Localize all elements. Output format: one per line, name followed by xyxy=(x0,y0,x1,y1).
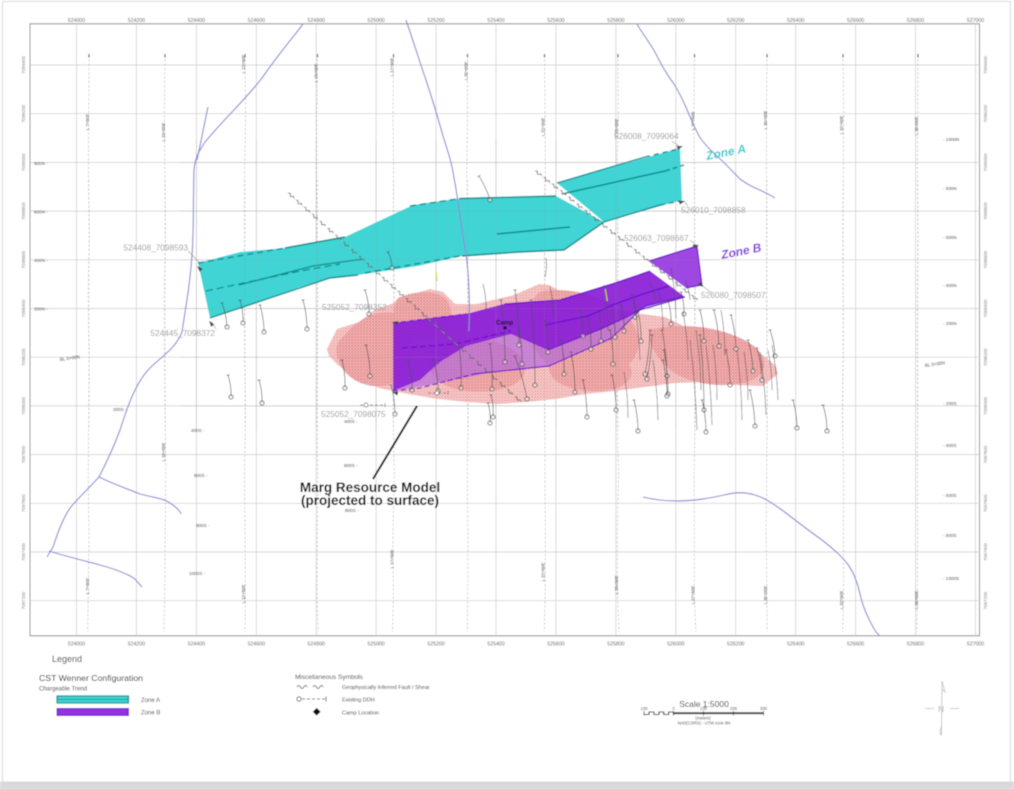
svg-text:7099000: 7099000 xyxy=(983,153,988,171)
svg-text:NAD(CSRS) - UTM zone 8N: NAD(CSRS) - UTM zone 8N xyxy=(678,721,731,726)
svg-text:7097800: 7097800 xyxy=(21,445,26,463)
svg-text:524600: 524600 xyxy=(248,18,265,24)
svg-text:800S -: 800S - xyxy=(196,523,210,528)
svg-text:Camp: Camp xyxy=(496,320,513,327)
svg-text:Chargeable Trend: Chargeable Trend xyxy=(39,687,87,693)
svg-text:7098000: 7098000 xyxy=(21,397,26,415)
svg-text:Miscellaneous Symbols: Miscellaneous Symbols xyxy=(295,674,364,681)
svg-text:- 400S: - 400S xyxy=(943,443,957,448)
svg-text:7098600: 7098600 xyxy=(21,250,26,268)
svg-text:524400: 524400 xyxy=(188,642,205,648)
svg-text:526008_7099064: 526008_7099064 xyxy=(614,131,679,141)
svg-text:525400: 525400 xyxy=(487,18,504,24)
svg-text:524200: 524200 xyxy=(128,18,145,24)
svg-text:1000S -: 1000S - xyxy=(189,571,206,576)
svg-text:526400: 526400 xyxy=(787,642,804,648)
svg-text:526010_7098858: 526010_7098858 xyxy=(681,205,746,215)
svg-text:600S -: 600S - xyxy=(194,473,208,478)
svg-text:Legend: Legend xyxy=(52,654,82,664)
svg-text:L 15+00E: L 15+00E xyxy=(314,64,319,83)
svg-text:L 7+50E: L 7+50E xyxy=(85,578,90,594)
svg-text:524200: 524200 xyxy=(128,642,145,648)
svg-text:7097400: 7097400 xyxy=(21,543,26,561)
svg-text:L 25+00E: L 25+00E xyxy=(614,576,619,595)
svg-text:7097200: 7097200 xyxy=(983,591,988,609)
svg-text:524445_7098372: 524445_7098372 xyxy=(150,328,215,338)
svg-text:526800: 526800 xyxy=(907,642,924,648)
svg-text:7098200: 7098200 xyxy=(21,348,26,366)
svg-text:7097200: 7097200 xyxy=(21,591,26,609)
svg-text:525600: 525600 xyxy=(547,642,564,648)
svg-text:7099000: 7099000 xyxy=(21,153,26,171)
svg-text:CST Wenner Configuration: CST Wenner Configuration xyxy=(39,673,143,683)
svg-text:525052_7098075: 525052_7098075 xyxy=(321,409,386,419)
svg-text:800S -: 800S - xyxy=(345,508,359,513)
svg-text:L 7+50E: L 7+50E xyxy=(85,114,90,130)
svg-text:Existing DDH: Existing DDH xyxy=(342,698,375,704)
svg-text:7099200: 7099200 xyxy=(983,104,988,122)
svg-text:526600: 526600 xyxy=(847,642,864,648)
svg-text:525800: 525800 xyxy=(607,642,624,648)
svg-text:200: 200 xyxy=(730,706,738,711)
svg-text:200N -: 200N - xyxy=(34,307,48,312)
svg-text:L 32+50E: L 32+50E xyxy=(839,116,844,135)
svg-text:Camp Location: Camp Location xyxy=(342,711,379,717)
svg-text:L 35+00E: L 35+00E xyxy=(914,117,919,136)
svg-text:L 12+50E: L 12+50E xyxy=(241,55,246,74)
svg-text:L 17+50E: L 17+50E xyxy=(390,58,395,77)
svg-text:400N -: 400N - xyxy=(34,258,48,263)
svg-text:300: 300 xyxy=(760,706,768,711)
svg-text:524800: 524800 xyxy=(308,642,325,648)
svg-text:L 12+50E: L 12+50E xyxy=(241,585,246,604)
svg-text:7098800: 7098800 xyxy=(21,202,26,220)
svg-text:7097600: 7097600 xyxy=(983,494,988,512)
svg-text:7098200: 7098200 xyxy=(983,348,988,366)
svg-text:L 17+50E: L 17+50E xyxy=(390,550,395,569)
svg-text:- 200N: - 200N xyxy=(943,321,957,326)
svg-text:7099400: 7099400 xyxy=(21,56,26,74)
svg-text:- 200S: - 200S xyxy=(943,401,957,406)
svg-text:525200: 525200 xyxy=(427,18,444,24)
svg-text:524600: 524600 xyxy=(248,642,265,648)
svg-text:L 30+00E: L 30+00E xyxy=(763,111,768,130)
svg-text:- 400N: - 400N xyxy=(943,283,957,288)
svg-text:7098600: 7098600 xyxy=(983,250,988,268)
svg-text:100: 100 xyxy=(700,706,708,711)
svg-text:- 800S: - 800S xyxy=(943,533,957,538)
svg-text:L 32+50E: L 32+50E xyxy=(839,591,844,610)
svg-text:7097600: 7097600 xyxy=(21,494,26,512)
svg-text:7099400: 7099400 xyxy=(983,56,988,74)
svg-text:7099200: 7099200 xyxy=(21,104,26,122)
svg-text:526200: 526200 xyxy=(727,642,744,648)
svg-text:526800: 526800 xyxy=(907,18,924,24)
svg-text:800N -: 800N - xyxy=(34,161,48,166)
svg-text:525600: 525600 xyxy=(547,18,564,24)
svg-text:600N -: 600N - xyxy=(34,210,48,215)
svg-text:526080_7098507: 526080_7098507 xyxy=(701,290,766,300)
svg-text:L 35+00E: L 35+00E xyxy=(914,591,919,610)
svg-text:526200: 526200 xyxy=(727,18,744,24)
svg-text:525400: 525400 xyxy=(487,642,504,648)
svg-text:- 600S: - 600S xyxy=(943,493,957,498)
svg-text:L 22+50E: L 22+50E xyxy=(541,563,546,582)
svg-text:7098400: 7098400 xyxy=(21,299,26,317)
svg-text:7098400: 7098400 xyxy=(983,299,988,317)
svg-text:526000: 526000 xyxy=(667,18,684,24)
svg-text:524400: 524400 xyxy=(188,18,205,24)
svg-text:524800: 524800 xyxy=(308,18,325,24)
svg-text:527000: 527000 xyxy=(967,642,984,648)
svg-text:L 20+00E: L 20+00E xyxy=(464,62,469,81)
svg-text:- 1000N: - 1000N xyxy=(943,137,959,142)
svg-text:524408_7098593: 524408_7098593 xyxy=(123,243,188,253)
svg-text:527000: 527000 xyxy=(967,18,984,24)
svg-text:524000: 524000 xyxy=(68,642,85,648)
svg-text:7098800: 7098800 xyxy=(983,202,988,220)
svg-text:525800: 525800 xyxy=(607,18,624,24)
svg-text:7097400: 7097400 xyxy=(983,543,988,561)
svg-text:525000: 525000 xyxy=(367,642,384,648)
svg-text:L 10+00E: L 10+00E xyxy=(161,123,166,142)
svg-text:524000: 524000 xyxy=(68,18,85,24)
svg-text:L 22+50E: L 22+50E xyxy=(541,118,546,137)
svg-text:Geophysically Inferred Fault /: Geophysically Inferred Fault / Shear xyxy=(342,685,430,691)
svg-text:200S -: 200S - xyxy=(113,407,127,412)
svg-text:600S -: 600S - xyxy=(344,463,358,468)
svg-text:N: N xyxy=(938,704,944,714)
svg-text:525000: 525000 xyxy=(367,18,384,24)
svg-text:526600: 526600 xyxy=(847,18,864,24)
svg-text:100: 100 xyxy=(641,706,649,711)
svg-text:525200: 525200 xyxy=(427,642,444,648)
svg-text:- 800N: - 800N xyxy=(943,186,957,191)
svg-text:L 10+00E: L 10+00E xyxy=(161,443,166,462)
svg-text:526063_7098667: 526063_7098667 xyxy=(624,233,689,243)
svg-text:(projected to surface): (projected to surface) xyxy=(301,493,439,508)
svg-text:- 1000S: - 1000S xyxy=(943,576,959,581)
svg-text:400S -: 400S - xyxy=(344,419,358,424)
svg-text:- 600N: - 600N xyxy=(943,235,957,240)
svg-text:L 30+00E: L 30+00E xyxy=(763,586,768,605)
svg-text:525052_7098352: 525052_7098352 xyxy=(322,302,387,312)
svg-text:Zone A: Zone A xyxy=(141,698,160,704)
svg-text:Zone B: Zone B xyxy=(141,711,160,717)
svg-text:526400: 526400 xyxy=(787,18,804,24)
svg-text:L 27+50E: L 27+50E xyxy=(691,586,696,605)
svg-text:526000: 526000 xyxy=(667,642,684,648)
svg-text:7098000: 7098000 xyxy=(983,397,988,415)
svg-text:400S -: 400S - xyxy=(191,428,205,433)
svg-text:7097800: 7097800 xyxy=(983,445,988,463)
